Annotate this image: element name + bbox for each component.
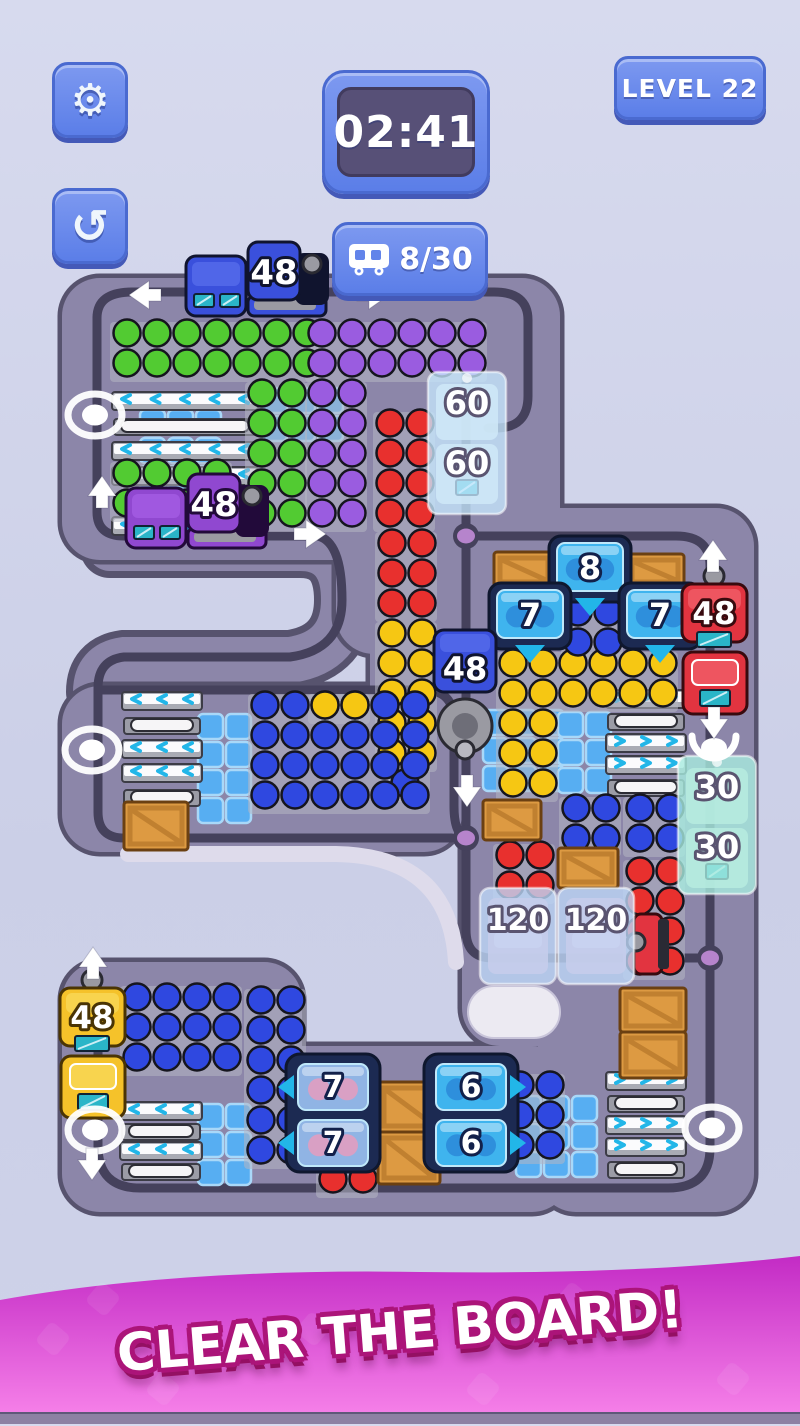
svg-text:48: 48 bbox=[70, 1000, 113, 1036]
bottom-strip bbox=[0, 1412, 800, 1424]
undo-button[interactable]: ↺ bbox=[52, 188, 128, 264]
crate bbox=[620, 988, 686, 1032]
svg-text:120: 120 bbox=[487, 903, 550, 938]
gate-6-6[interactable]: 66 bbox=[424, 1054, 526, 1172]
wagon-counter-value: 8/30 bbox=[399, 242, 473, 277]
svg-text:7: 7 bbox=[323, 1126, 344, 1161]
svg-text:7: 7 bbox=[649, 596, 671, 634]
wagon-icon bbox=[347, 242, 391, 276]
train-blue-48[interactable]: 48 bbox=[186, 242, 328, 316]
svg-text:60: 60 bbox=[445, 444, 490, 482]
undo-icon: ↺ bbox=[71, 199, 110, 253]
svg-text:30: 30 bbox=[695, 828, 740, 866]
train-red-48[interactable]: 48 bbox=[682, 566, 747, 714]
timer-display: 02:41 bbox=[337, 87, 475, 177]
svg-text:7: 7 bbox=[519, 596, 541, 634]
svg-text:7: 7 bbox=[323, 1070, 344, 1105]
svg-text:120: 120 bbox=[565, 903, 628, 938]
level-label: LEVEL 22 bbox=[622, 74, 759, 103]
crate bbox=[124, 802, 188, 850]
svg-text:6: 6 bbox=[461, 1126, 482, 1161]
svg-text:60: 60 bbox=[445, 384, 490, 422]
svg-text:48: 48 bbox=[692, 596, 735, 632]
timer-value: 02:41 bbox=[333, 107, 478, 158]
svg-text:8: 8 bbox=[579, 549, 601, 587]
timer-badge: 02:41 bbox=[322, 70, 490, 194]
bottom-banner: CLEAR THE BOARD! bbox=[0, 1256, 800, 1422]
crate bbox=[483, 800, 541, 840]
svg-text:6: 6 bbox=[461, 1070, 482, 1105]
svg-text:48: 48 bbox=[250, 253, 297, 293]
level-badge: LEVEL 22 bbox=[614, 56, 766, 120]
svg-text:48: 48 bbox=[190, 485, 237, 525]
track-band bbox=[96, 548, 344, 692]
gear-icon: ⚙ bbox=[70, 75, 109, 126]
svg-text:48: 48 bbox=[443, 650, 488, 688]
train-yellow-48[interactable]: 48 bbox=[60, 970, 125, 1118]
settings-button[interactable]: ⚙ bbox=[52, 62, 128, 138]
crate bbox=[558, 848, 618, 888]
gate-7-7[interactable]: 77 bbox=[278, 1054, 380, 1172]
frozen-gate-120[interactable]: 120 bbox=[558, 888, 634, 984]
frozen-gate-120[interactable]: 120 bbox=[480, 888, 556, 984]
wagon-counter-badge: 8/30 bbox=[332, 222, 488, 296]
crate bbox=[620, 1032, 686, 1078]
svg-text:30: 30 bbox=[695, 768, 740, 806]
frozen-gate-60-60[interactable]: 6060 bbox=[428, 372, 506, 514]
frozen-gate-30-30[interactable]: 3030 bbox=[678, 756, 756, 894]
